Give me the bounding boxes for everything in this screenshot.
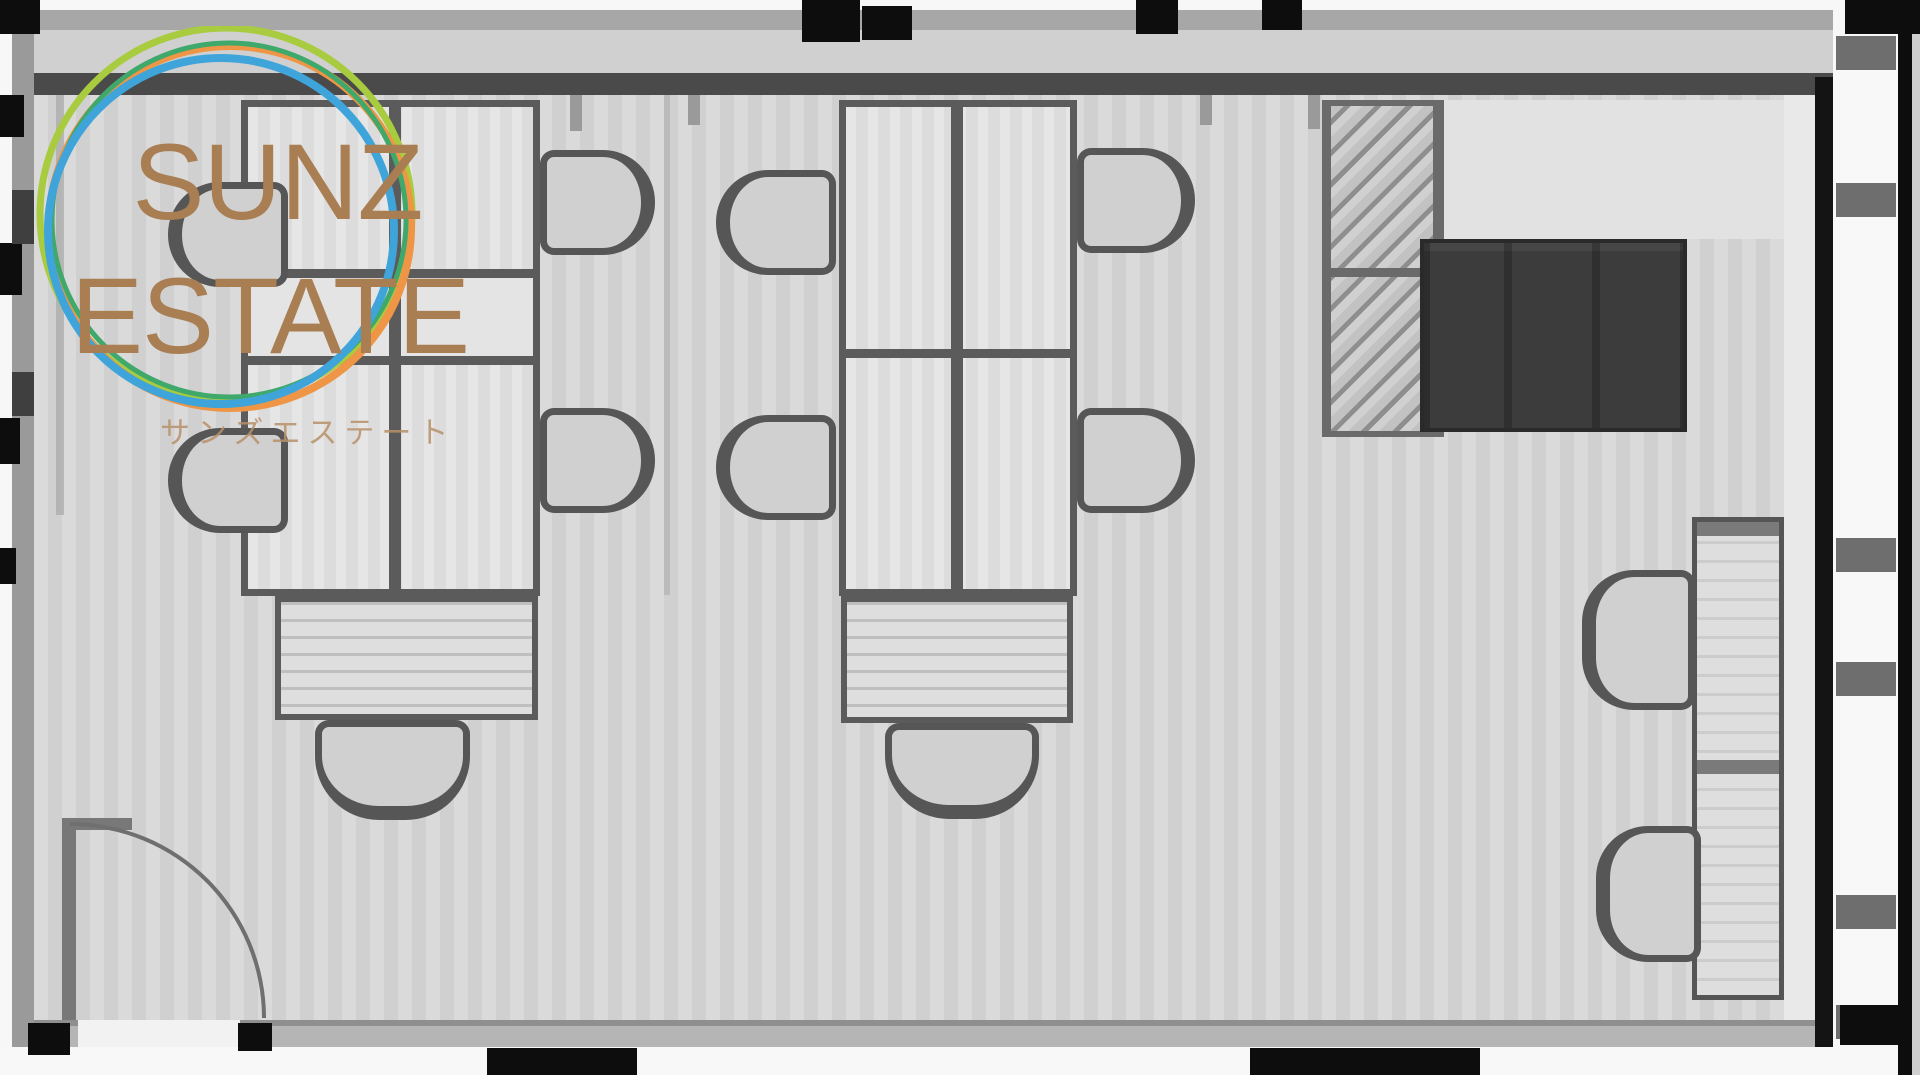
wall-pixel-block xyxy=(0,243,22,295)
image-edge-right xyxy=(1912,0,1920,1075)
wall-pixel-block xyxy=(1845,0,1920,34)
chair xyxy=(315,720,470,820)
window-frame-stub xyxy=(1200,95,1212,125)
window-mullion xyxy=(1836,183,1896,217)
floorplan-image: SUNZ ESTATE サンズエステート xyxy=(0,0,1920,1075)
wall-pixel-block xyxy=(1250,1048,1480,1075)
logo-subtitle: サンズエステート xyxy=(160,408,455,452)
desk-divider-vertical xyxy=(951,107,963,589)
desk-island-middle xyxy=(839,100,1077,596)
window-frame-stub xyxy=(570,95,582,131)
chair xyxy=(540,150,655,255)
wall-pixel-block xyxy=(487,1048,637,1075)
wall-pixel-block xyxy=(1840,1005,1898,1045)
window-frame-stub xyxy=(688,95,700,125)
floor-seam-line xyxy=(664,95,670,595)
chair xyxy=(1596,826,1701,962)
door-opening xyxy=(78,1020,240,1047)
counter-edge-band xyxy=(1697,522,1779,536)
chair xyxy=(1077,408,1195,513)
counter-dark-box xyxy=(1420,239,1687,432)
wall-right-outer xyxy=(1898,0,1912,1075)
wall-pixel-block xyxy=(1136,0,1178,34)
window-mullion xyxy=(1836,36,1896,70)
hatch-divider xyxy=(1331,268,1433,277)
logo-title-line1: SUNZ xyxy=(130,128,425,236)
chair xyxy=(1582,570,1695,710)
wall-pixel-block xyxy=(0,95,24,137)
window-mullion xyxy=(1836,662,1896,696)
wall-pixel-block xyxy=(802,0,860,42)
window-mullion xyxy=(1836,538,1896,572)
counter-edge-band xyxy=(1697,760,1779,774)
chair xyxy=(540,408,655,513)
desk-divider-horizontal xyxy=(846,349,1070,358)
chair xyxy=(1077,148,1195,253)
floor-strip-right xyxy=(1784,95,1815,1020)
wall-pixel-block xyxy=(1262,0,1302,30)
wall-pixel-block xyxy=(28,1023,70,1055)
chair xyxy=(716,415,836,520)
outer-band-bottom xyxy=(0,1047,1898,1075)
window-frame-stub xyxy=(1308,95,1320,129)
wall-right-inner xyxy=(1815,77,1833,1047)
wall-pixel-block xyxy=(238,1023,272,1051)
side-counter-table xyxy=(1692,517,1784,1000)
meeting-table-left xyxy=(275,596,538,720)
window-mullion xyxy=(1836,895,1896,929)
wall-bottom xyxy=(34,1020,1815,1047)
meeting-table-middle xyxy=(841,596,1073,723)
wall-pixel-block xyxy=(0,418,20,464)
floor-zone-light xyxy=(1444,100,1784,239)
chair xyxy=(716,170,836,275)
logo-title-line2: ESTATE xyxy=(60,262,480,370)
wall-pixel-block xyxy=(862,6,912,40)
wall-pixel-block xyxy=(0,548,16,584)
